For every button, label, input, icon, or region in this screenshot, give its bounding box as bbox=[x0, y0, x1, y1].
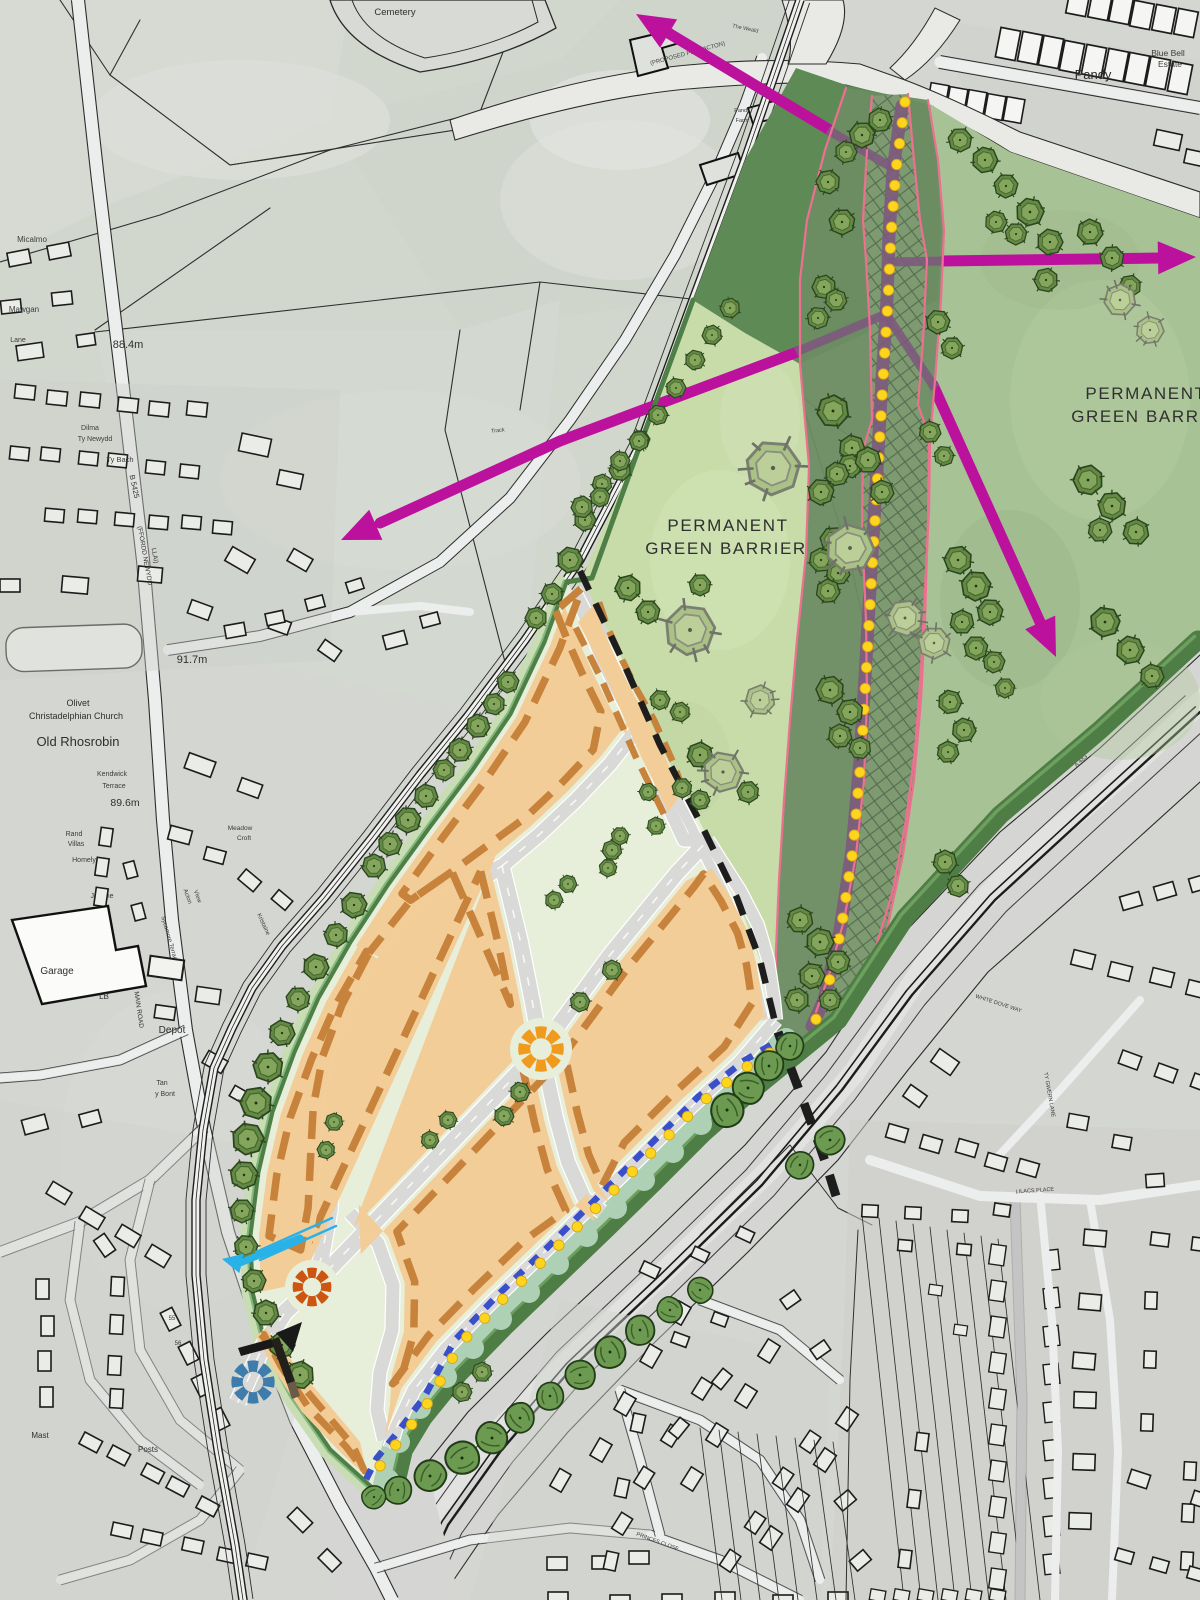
svg-text:Kendwick: Kendwick bbox=[97, 771, 127, 778]
svg-text:Micalmo: Micalmo bbox=[17, 235, 47, 244]
svg-text:Estate: Estate bbox=[1158, 59, 1182, 69]
svg-text:Villas: Villas bbox=[68, 841, 85, 848]
svg-text:PERMANENT: PERMANENT bbox=[667, 516, 788, 535]
svg-text:Tan: Tan bbox=[156, 1080, 167, 1087]
svg-text:Lane: Lane bbox=[10, 337, 26, 344]
svg-text:Old Rhosrobin: Old Rhosrobin bbox=[36, 734, 119, 749]
svg-text:Pandy: Pandy bbox=[734, 108, 750, 114]
svg-text:89.6m: 89.6m bbox=[110, 797, 139, 809]
svg-text:Blue Bell: Blue Bell bbox=[1151, 48, 1185, 58]
svg-text:Depot: Depot bbox=[159, 1025, 186, 1036]
svg-text:LB: LB bbox=[99, 992, 109, 1001]
svg-text:Cemetery: Cemetery bbox=[374, 7, 415, 18]
svg-text:PERMANENT: PERMANENT bbox=[1085, 384, 1200, 403]
svg-text:Posts: Posts bbox=[138, 1445, 158, 1454]
svg-text:56: 56 bbox=[175, 1341, 182, 1347]
svg-text:y Bont: y Bont bbox=[155, 1091, 175, 1098]
svg-text:Garage: Garage bbox=[40, 966, 74, 977]
svg-text:Dilma: Dilma bbox=[81, 425, 99, 432]
svg-text:Pandy: Pandy bbox=[1075, 67, 1112, 82]
svg-text:Mawgan: Mawgan bbox=[9, 305, 39, 314]
svg-text:Olivet: Olivet bbox=[66, 698, 90, 708]
svg-text:91.7m: 91.7m bbox=[177, 654, 208, 666]
svg-text:Ty Bach: Ty Bach bbox=[106, 455, 133, 464]
svg-text:GREEN BARRIER: GREEN BARRIER bbox=[1071, 407, 1200, 426]
svg-text:Ty Newydd: Ty Newydd bbox=[78, 436, 113, 443]
svg-text:Mast: Mast bbox=[31, 1431, 49, 1440]
svg-text:Meadow: Meadow bbox=[228, 825, 253, 832]
svg-text:88.4m: 88.4m bbox=[113, 339, 144, 351]
svg-text:Christadelphian Church: Christadelphian Church bbox=[29, 711, 123, 721]
svg-text:Homely: Homely bbox=[72, 857, 96, 864]
svg-text:GREEN BARRIER: GREEN BARRIER bbox=[645, 539, 807, 558]
svg-text:55: 55 bbox=[169, 1316, 176, 1322]
svg-text:Croft: Croft bbox=[237, 835, 251, 842]
svg-text:Terrace: Terrace bbox=[102, 783, 125, 790]
svg-text:Rand: Rand bbox=[66, 831, 83, 838]
